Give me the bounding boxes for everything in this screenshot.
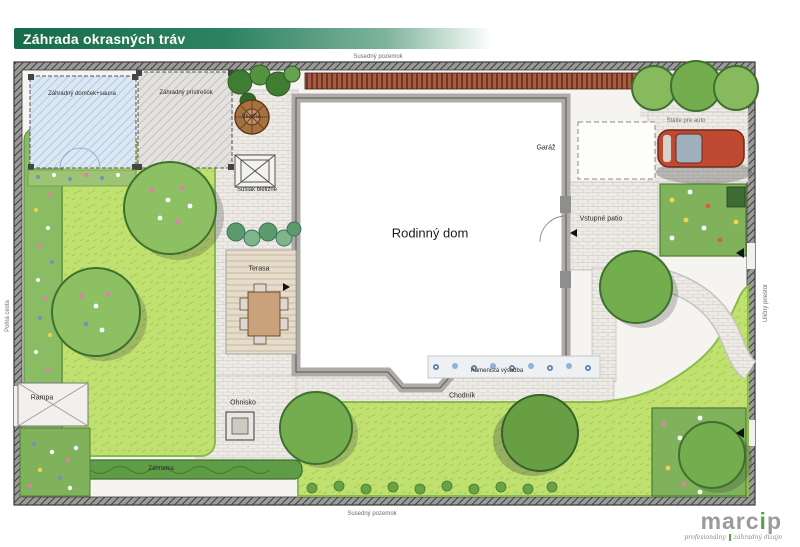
bottom-left-bed <box>20 428 90 496</box>
garden-shelter <box>136 70 234 170</box>
label-well: Studňa <box>241 114 260 120</box>
label-field-road: Poľná cesta <box>5 300 11 332</box>
right-flower-bed <box>660 184 746 256</box>
garden-house-sauna <box>28 74 138 170</box>
label-shelter: Záhradný prístrešok <box>159 90 212 96</box>
label-family-house: Rodinný dom <box>392 227 469 240</box>
label-stone-planting: Kamenistá výsadba <box>471 368 523 374</box>
logo-tagline: profesionálnyzáhradný dizajn <box>684 534 782 541</box>
family-house <box>296 98 571 388</box>
label-car-parking: Státie pre auto <box>666 118 705 124</box>
garden-plan-drawing <box>0 0 800 547</box>
label-street-space: Uličný priestor <box>763 284 769 322</box>
logo-tagline-right: záhradný dizajn <box>734 534 782 541</box>
hedge-strip <box>64 460 302 479</box>
garage-outline <box>578 122 655 179</box>
sauna-front-bed <box>28 170 136 186</box>
label-ramp: Rampa <box>31 395 54 402</box>
label-neighbor-plot-bottom: Susedný pozemok <box>347 511 396 517</box>
label-garden-house: Záhradný domček+sauna <box>48 91 116 97</box>
label-terrace: Terasa <box>248 266 269 273</box>
logo-wordmark: marcip <box>684 510 782 533</box>
pergola-strip <box>305 73 640 89</box>
label-entry-patio: Vstupné patio <box>580 216 623 223</box>
stone-planting-strip <box>428 356 600 378</box>
clothes-dryer <box>235 155 275 187</box>
label-garage: Garáž <box>536 145 555 152</box>
fire-pit <box>226 412 254 440</box>
label-walkway: Chodník <box>449 393 475 400</box>
logo-part1: marc <box>701 508 760 534</box>
label-fire-pit: Ohnisko <box>230 400 256 407</box>
label-garden-bed: Záhradka <box>148 466 173 472</box>
company-logo: marcip profesionálnyzáhradný dizajn <box>684 510 782 541</box>
logo-part2: i <box>760 508 767 534</box>
logo-divider <box>729 534 731 541</box>
logo-tagline-left: profesionálny <box>684 534 725 541</box>
car <box>656 130 752 184</box>
label-clothes-dryer: Sušiak bielizne <box>237 187 277 193</box>
label-neighbor-plot-top: Susedný pozemok <box>353 54 402 60</box>
logo-part3: p <box>767 508 782 534</box>
ramp <box>18 383 88 426</box>
